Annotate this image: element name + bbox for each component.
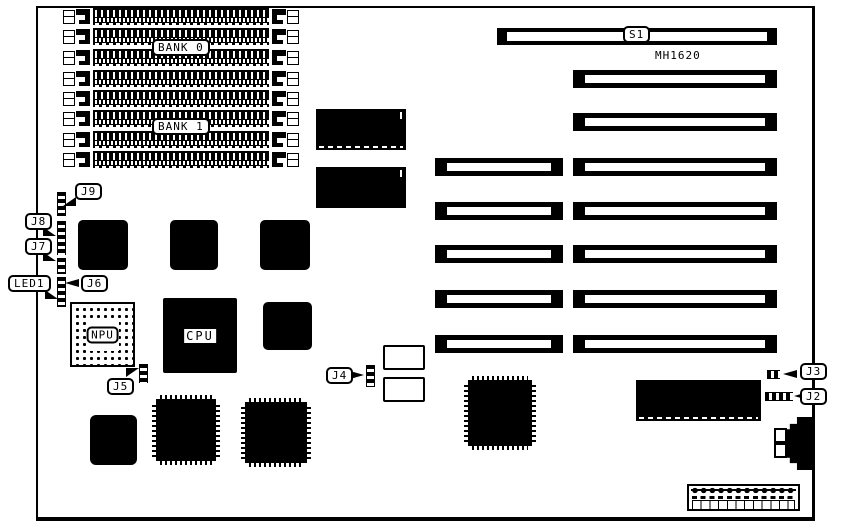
rom-chip-1 (316, 109, 406, 150)
s1-label: S1 (623, 26, 650, 43)
ic-chip-2 (170, 220, 218, 270)
power-connector-terminals (692, 500, 795, 510)
jumper-j7-pins (57, 258, 66, 274)
power-connector-pins (691, 486, 796, 495)
simm-clip-right (287, 30, 299, 44)
simm-clip-left (63, 112, 75, 126)
simm-clip-left (63, 153, 75, 167)
cpu-chip: CPU (163, 298, 237, 373)
bank0-label: BANK 0 (152, 39, 210, 56)
qfp-chip-3 (464, 376, 536, 450)
bank1-label: BANK 1 (152, 118, 210, 135)
jumper-j4-pins (366, 365, 375, 387)
simm-clip-right (287, 92, 299, 106)
board-model-label: MH1620 (655, 50, 701, 62)
ic-chip-5 (90, 415, 137, 465)
simm-clip-right (287, 112, 299, 126)
simm-socket-1 (63, 8, 299, 26)
ic-chip-6 (636, 380, 761, 421)
simm-socket-5 (63, 90, 299, 108)
expansion-slot-long-2 (573, 113, 777, 131)
callout-j6-tail (65, 279, 79, 287)
jumper-j2-pins (765, 392, 793, 401)
expansion-slot-long-3 (573, 158, 777, 176)
npu-socket: NPU (70, 302, 135, 367)
callout-j9-tail (63, 197, 76, 206)
simm-body (93, 8, 269, 25)
rom-chip-2 (316, 167, 406, 208)
simm-clip-right (287, 51, 299, 65)
simm-clip-right (287, 153, 299, 167)
simm-clip-left (63, 30, 75, 44)
simm-clip-right (287, 10, 299, 24)
simm-body (93, 90, 269, 107)
ic-chip-4 (263, 302, 312, 350)
motherboard-diagram: BANK 0 BANK 1 S1 MH1620 CPU NPU J9 J8 (0, 0, 843, 527)
chip-notch (400, 112, 402, 119)
callout-led1: LED1 (8, 275, 51, 292)
simm-clip-right (287, 133, 299, 147)
callout-j6: J6 (81, 275, 108, 292)
expansion-slot-long-5 (573, 245, 777, 263)
simm-clip-left (63, 72, 75, 86)
chip-notch (400, 170, 402, 177)
callout-j3: J3 (800, 363, 827, 380)
simm-clip-left (63, 133, 75, 147)
simm-clip-right (287, 72, 299, 86)
simm-clip-left (63, 51, 75, 65)
expansion-slot-long-7 (573, 335, 777, 353)
jumper-j3-pins (767, 370, 780, 379)
expansion-slot-short-4 (435, 290, 563, 308)
simm-socket-4 (63, 70, 299, 88)
callout-j4: J4 (326, 367, 353, 384)
callout-j5-tail (126, 368, 139, 377)
simm-body (93, 151, 269, 168)
jumper-j8-pins (57, 221, 66, 255)
ic-chip-3 (260, 220, 310, 270)
callout-j5: J5 (107, 378, 134, 395)
callout-j2: J2 (800, 388, 827, 405)
callout-j9: J9 (75, 183, 102, 200)
simm-clip-left (63, 92, 75, 106)
expansion-slot-short-1 (435, 158, 563, 176)
keyboard-connector-pin-2 (774, 443, 787, 458)
simm-clip-left (63, 10, 75, 24)
expansion-slot-long-1 (573, 70, 777, 88)
oscillator-1 (383, 345, 425, 370)
expansion-slot-long-4 (573, 202, 777, 220)
callout-j3-tail (783, 370, 797, 378)
oscillator-2 (383, 377, 425, 402)
expansion-slot-short-3 (435, 245, 563, 263)
expansion-slot-short-2 (435, 202, 563, 220)
keyboard-connector-pin-1 (774, 428, 787, 443)
power-connector-dashes (692, 496, 795, 499)
simm-socket-8 (63, 151, 299, 169)
callout-j8: J8 (25, 213, 52, 230)
ic-chip-1 (78, 220, 128, 270)
qfp-chip-1 (152, 395, 220, 465)
cpu-label: CPU (184, 329, 216, 343)
qfp-chip-2 (241, 398, 311, 467)
expansion-slot-long-6 (573, 290, 777, 308)
callout-j7: J7 (25, 238, 52, 255)
jumper-j5-pins (139, 364, 148, 383)
expansion-slot-short-5 (435, 335, 563, 353)
power-connector (687, 484, 800, 511)
npu-label: NPU (86, 326, 119, 343)
simm-body (93, 70, 269, 87)
